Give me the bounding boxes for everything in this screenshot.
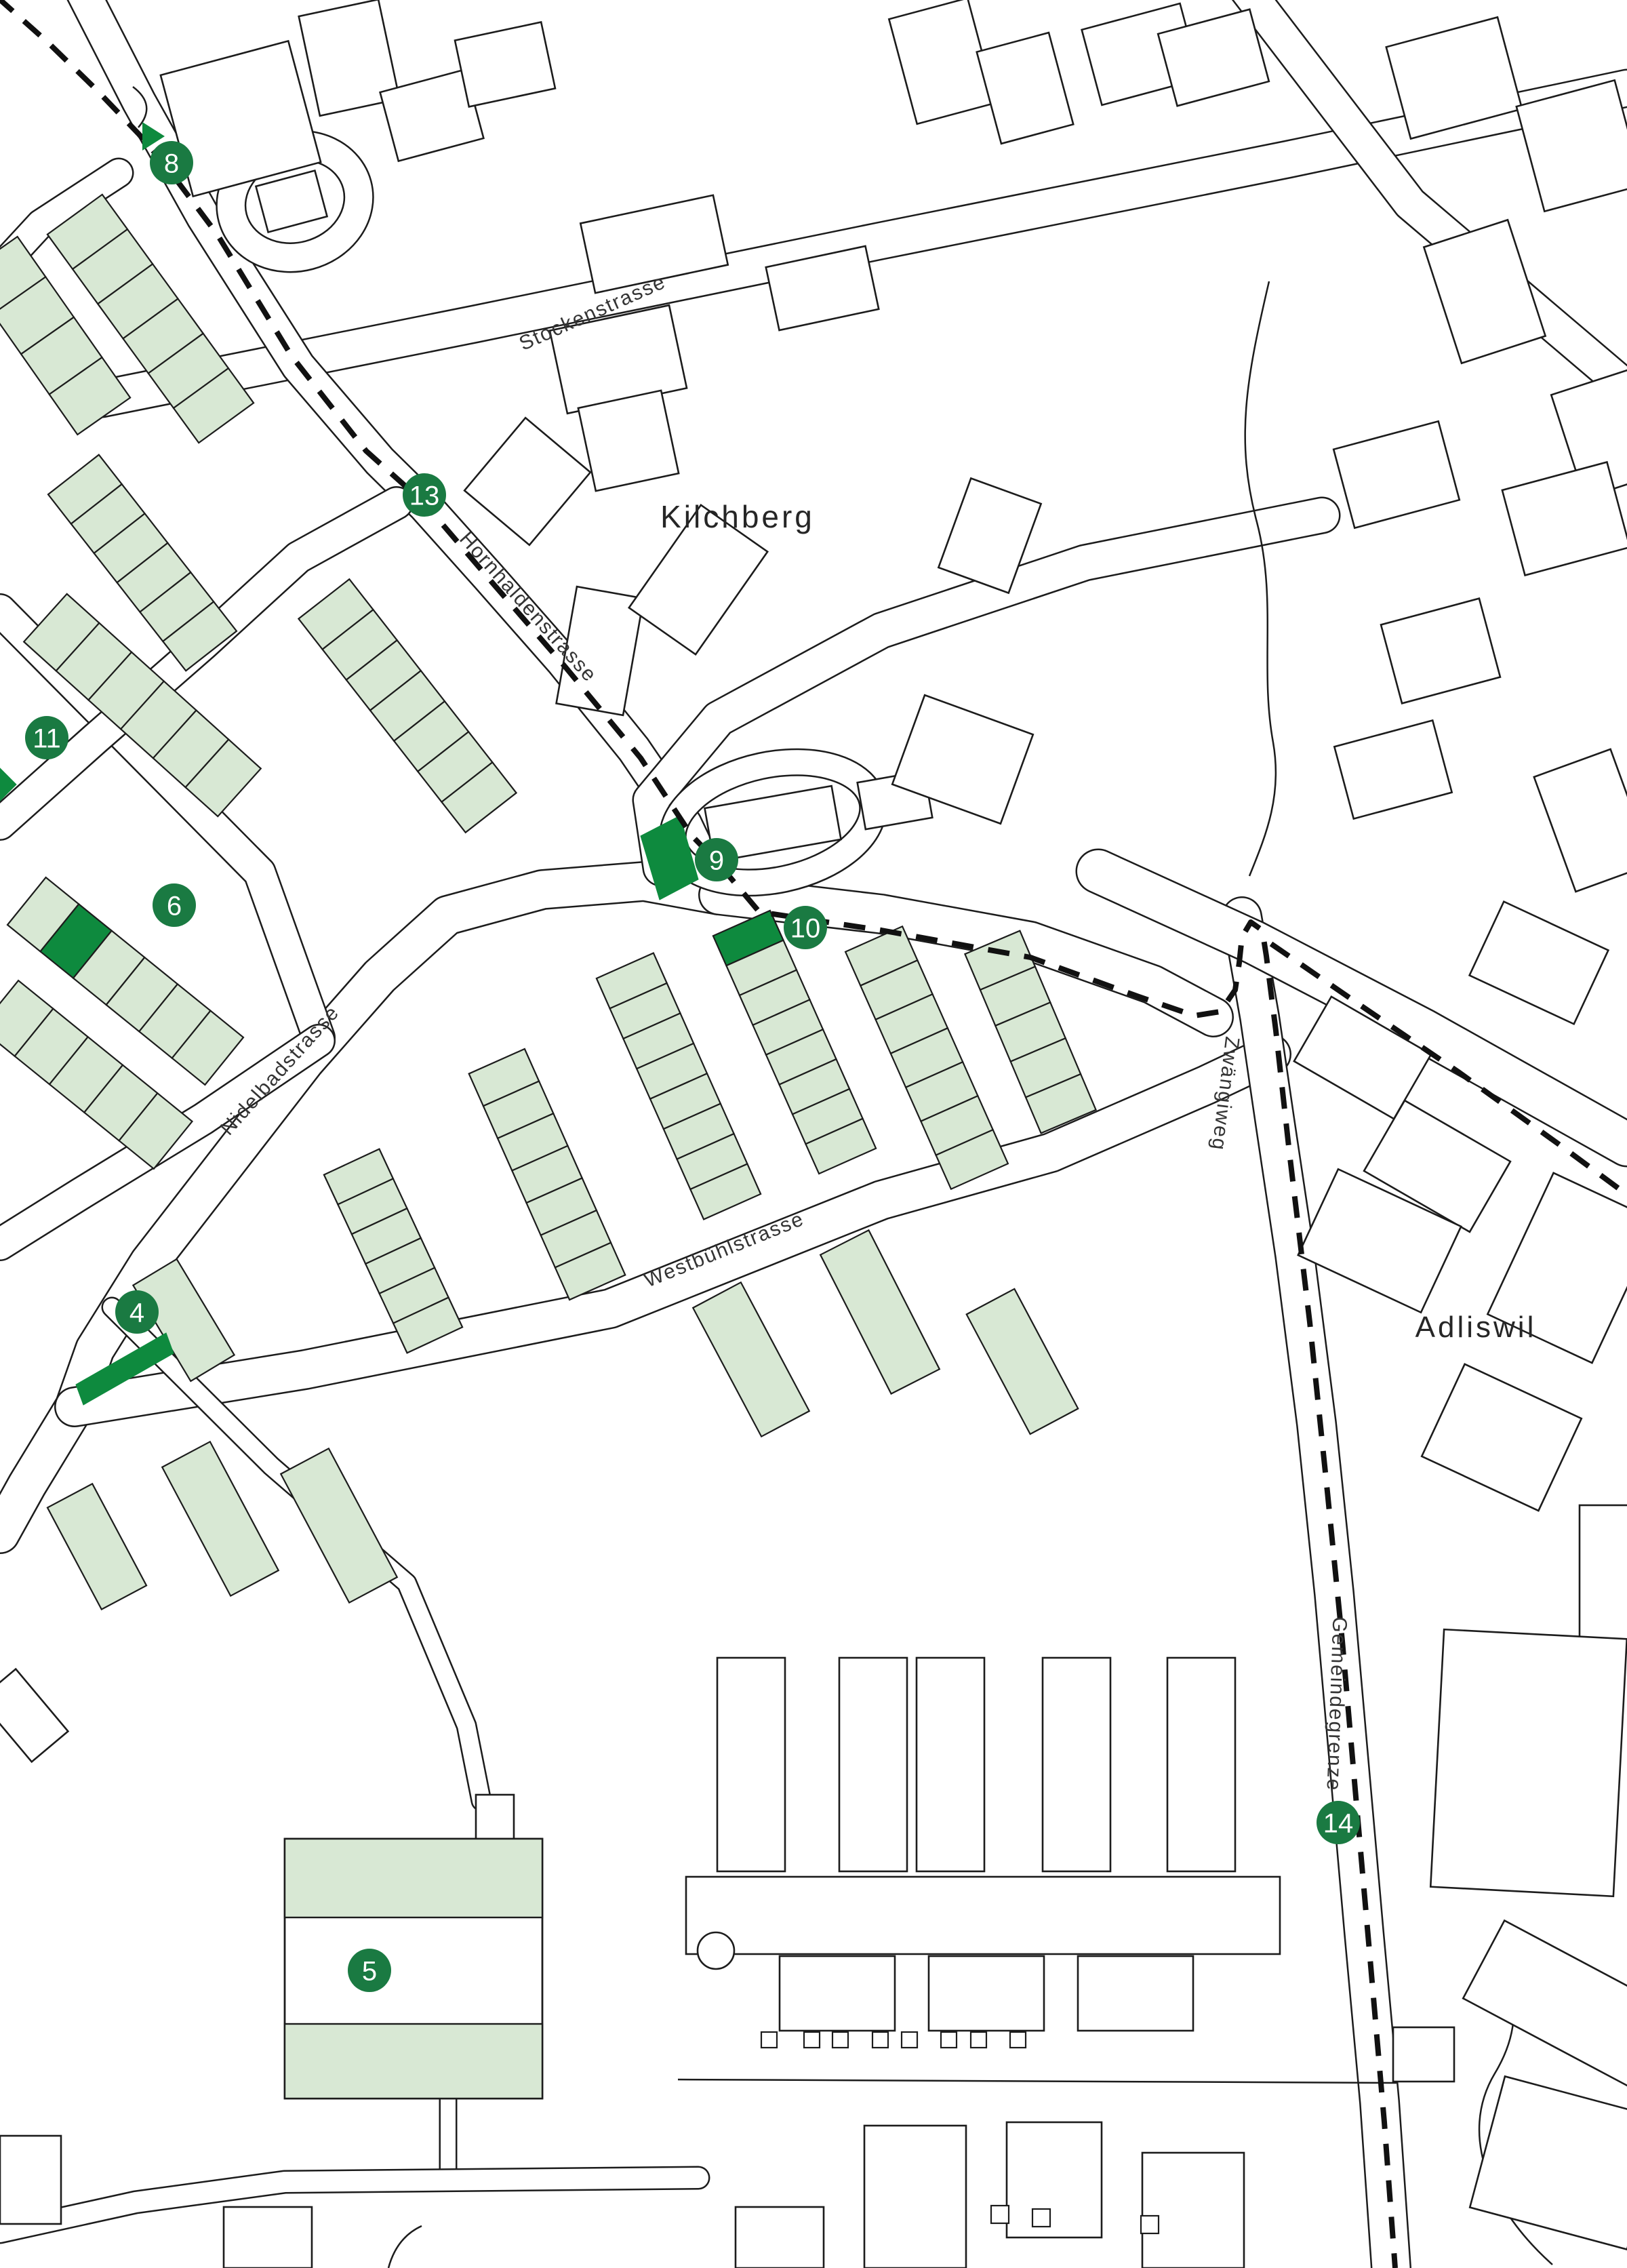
white-building (224, 2207, 312, 2268)
marker-number-14: 14 (1323, 1809, 1354, 1839)
white-building (1422, 1364, 1582, 1511)
white-building (256, 171, 327, 233)
complex-pavilion (971, 2032, 986, 2048)
white-building (864, 2126, 966, 2268)
white-building (476, 1795, 514, 1842)
complex-wing (929, 1956, 1044, 2031)
white-building (1463, 1920, 1627, 2100)
house-building (281, 1448, 397, 1602)
complex-tower (717, 1658, 785, 1871)
small-building (991, 2206, 1009, 2223)
marker-14[interactable]: 14 (1317, 1801, 1360, 1844)
marker-number-13: 13 (409, 481, 440, 511)
complex-pavilion (761, 2032, 777, 2048)
marker-number-6: 6 (167, 892, 182, 921)
white-building (1381, 599, 1500, 704)
marker-8[interactable]: 8 (150, 141, 193, 184)
building5-band (285, 2024, 542, 2098)
marker-5[interactable]: 5 (348, 1949, 391, 1992)
house-building (693, 1282, 809, 1436)
complex-bar (686, 1877, 1280, 1954)
complex-pavilion (804, 2032, 820, 2048)
white-building (1502, 462, 1627, 576)
house-building (820, 1230, 940, 1393)
white-building (1142, 2153, 1244, 2268)
white-building (1430, 1629, 1627, 1896)
parcel-arc-1 (388, 2226, 422, 2268)
complex-tower (1043, 1658, 1110, 1871)
white-building (1470, 2076, 1627, 2249)
complex-pavilion (941, 2032, 957, 2048)
house-building (967, 1289, 1079, 1434)
marker-10[interactable]: 10 (784, 906, 827, 949)
white-building (0, 1669, 68, 1762)
white-building (1333, 421, 1460, 528)
complex-circle (698, 1932, 734, 1969)
marker-number-11: 11 (33, 724, 61, 754)
building5-band (285, 1839, 542, 1917)
place-label-adliswil: Adliswil (1415, 1311, 1537, 1344)
white-building (1424, 220, 1545, 363)
complex-wing (780, 1956, 895, 2031)
complex-pavilion (872, 2032, 888, 2048)
white-building (1470, 902, 1609, 1024)
small-building (1141, 2216, 1159, 2233)
white-building (0, 2136, 61, 2224)
white-building (455, 22, 555, 107)
place-label-kilchberg: Kilchberg (660, 499, 815, 534)
road-zwaengiweg-road (1242, 917, 1391, 2268)
white-building (578, 391, 679, 491)
complex-tower (917, 1658, 984, 1871)
marker-number-8: 8 (164, 149, 179, 179)
house-building (47, 1484, 146, 1609)
white-building (977, 33, 1073, 144)
road-bottom-road (0, 2178, 698, 2232)
stream-line (1245, 281, 1276, 876)
marker-number-4: 4 (129, 1298, 144, 1328)
white-building (1393, 2027, 1454, 2082)
white-building (1334, 720, 1451, 818)
complex-tower (1167, 1658, 1235, 1871)
white-building (1580, 1505, 1627, 1641)
complex-pavilion (1010, 2032, 1026, 2048)
marker-number-9: 9 (709, 846, 724, 876)
white-building (464, 418, 590, 545)
complex-pavilion (832, 2032, 848, 2048)
marker-13[interactable]: 13 (403, 473, 446, 517)
marker-6[interactable]: 6 (153, 883, 196, 927)
white-building (736, 2207, 824, 2268)
site-map: 8131196104514 KilchbergAdliswilStockenst… (0, 0, 1627, 2268)
white-building (1007, 2122, 1102, 2237)
marker-4[interactable]: 4 (115, 1290, 159, 1334)
complex-wing (1078, 1956, 1193, 2031)
map-canvas: 8131196104514 KilchbergAdliswilStockenst… (0, 0, 1627, 2268)
complex-pavilion (902, 2032, 917, 2048)
white-building (1534, 749, 1627, 892)
marker-11[interactable]: 11 (25, 716, 68, 759)
small-building (1032, 2209, 1050, 2227)
marker-number-5: 5 (362, 1957, 377, 1987)
parcel-line-0 (678, 2080, 1397, 2083)
complex-tower (839, 1658, 907, 1871)
marker-9[interactable]: 9 (695, 838, 738, 881)
marker-number-10: 10 (790, 914, 821, 944)
